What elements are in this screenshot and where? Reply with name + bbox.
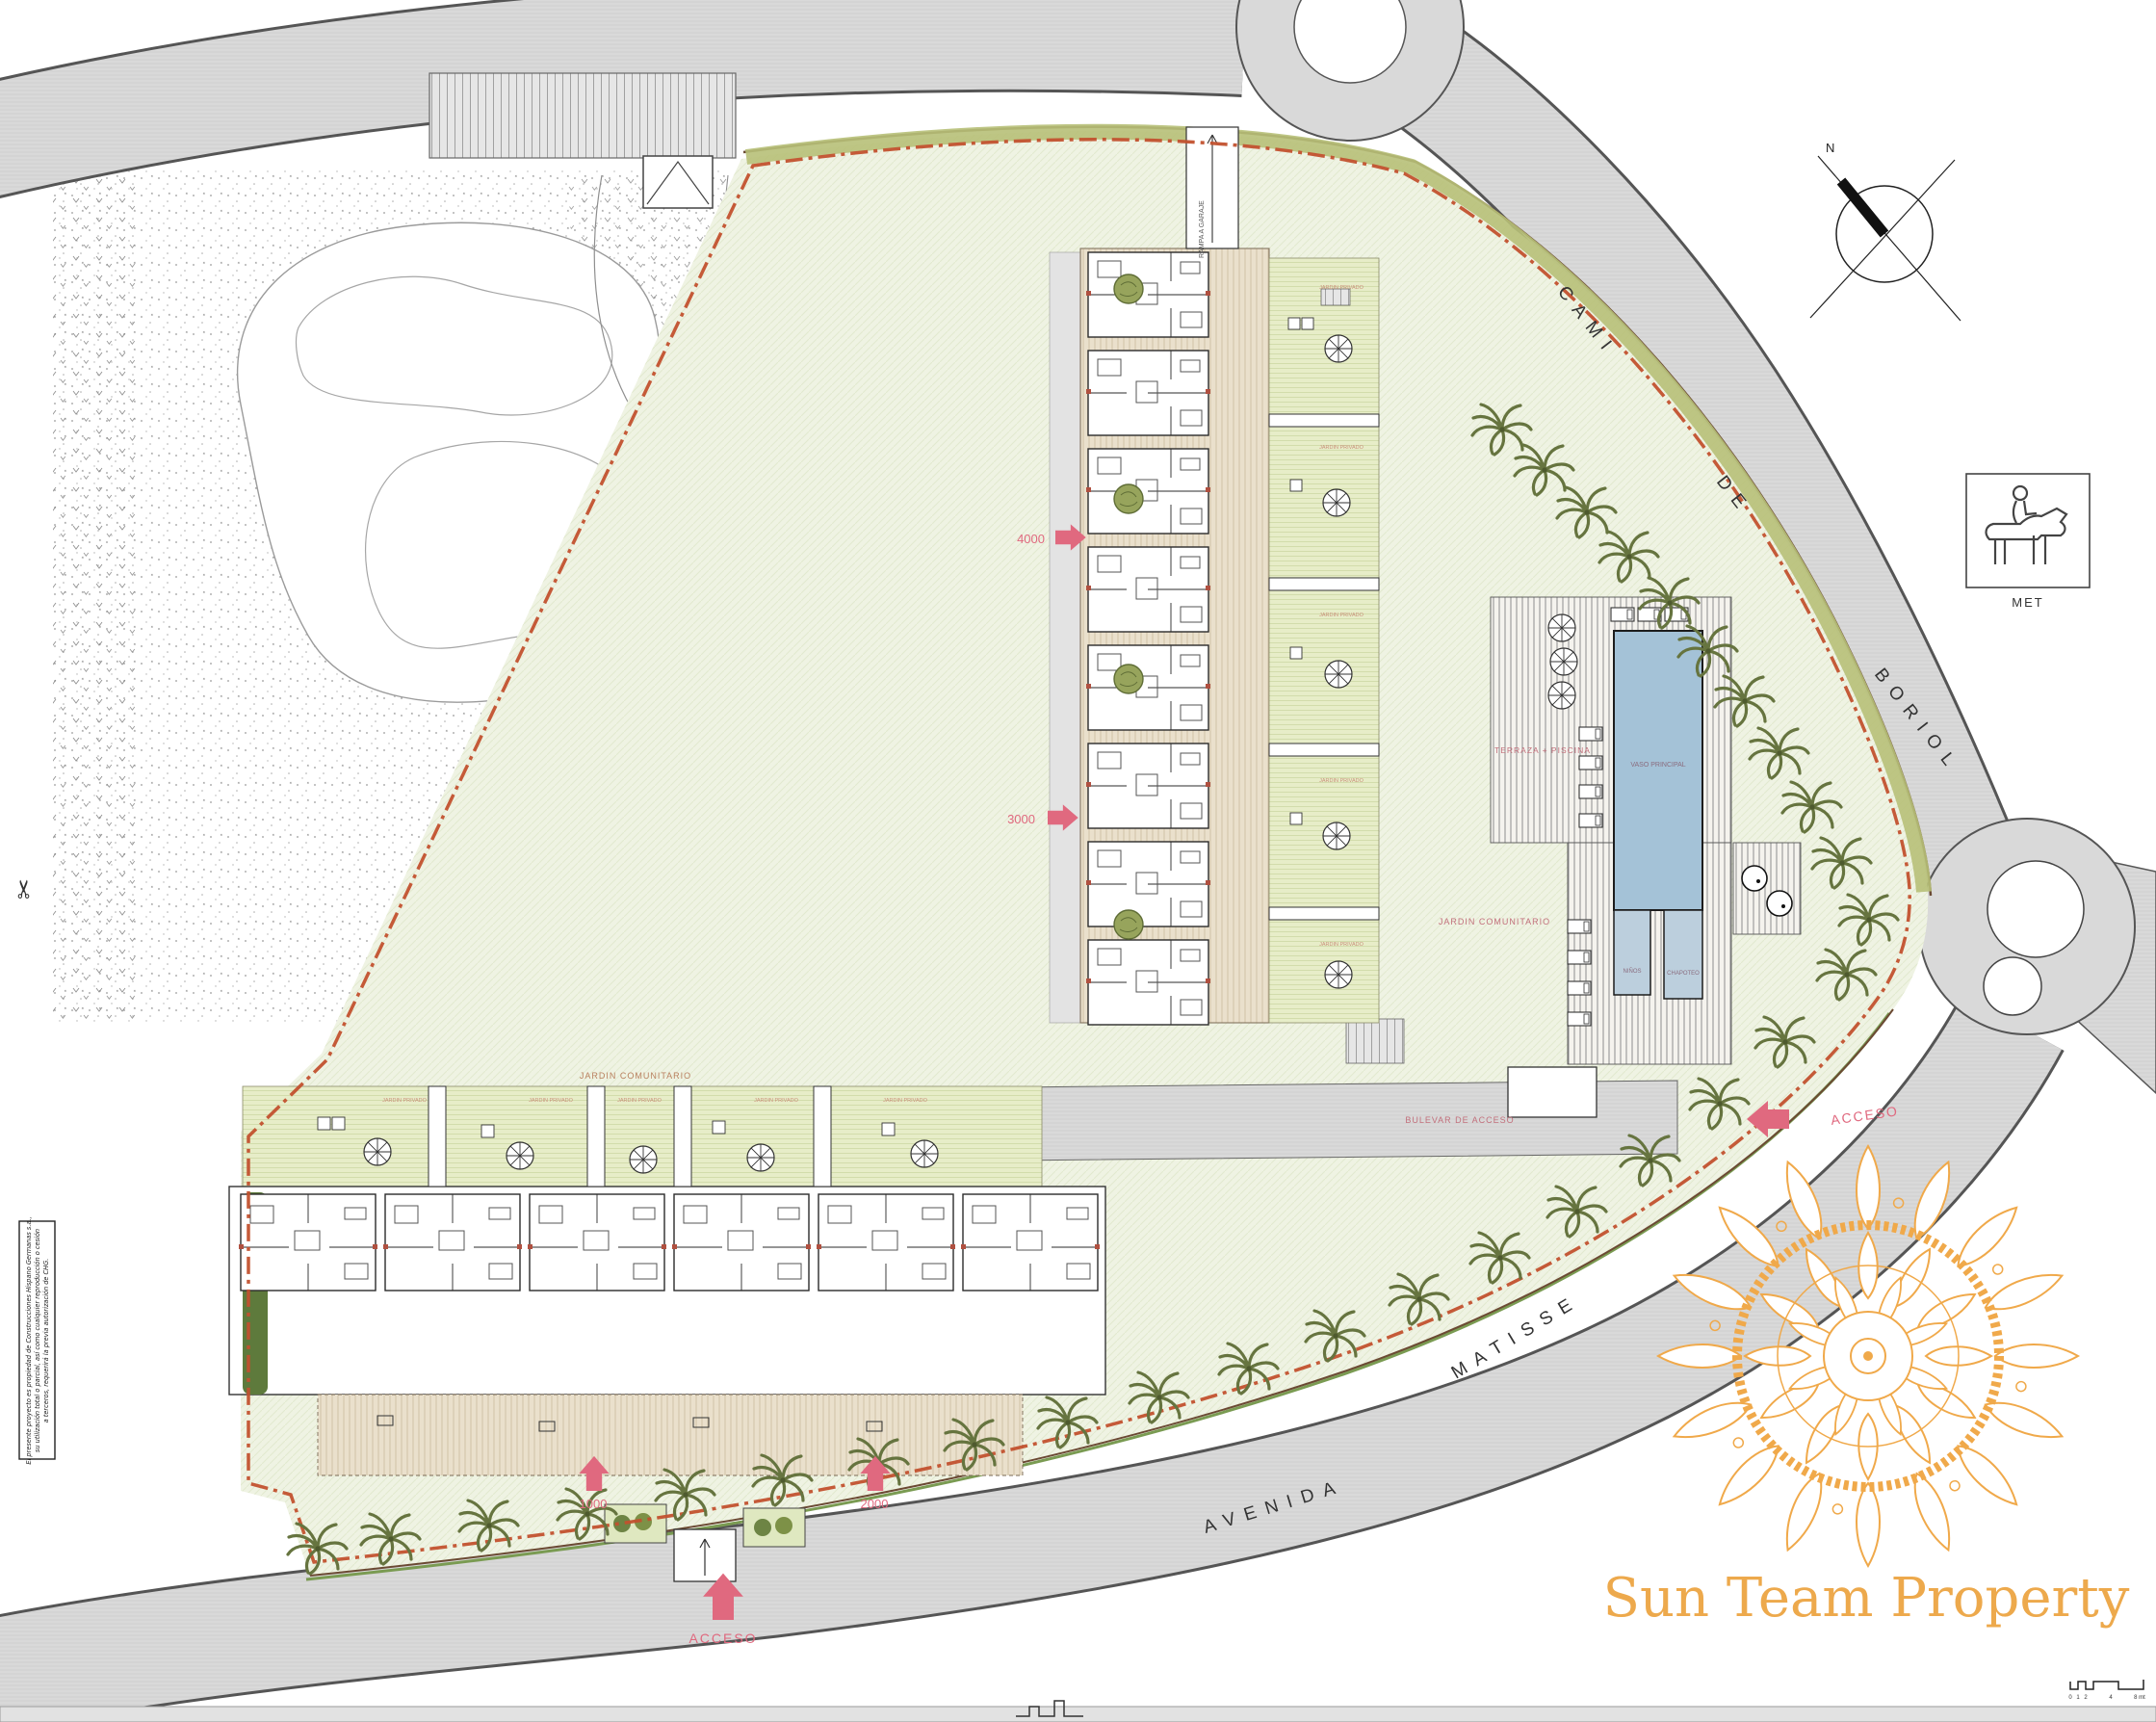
dim-label-3000: 3000 bbox=[1007, 812, 1035, 826]
garden-furniture bbox=[1290, 647, 1302, 659]
apartment-unit bbox=[672, 1194, 811, 1291]
garden-furniture bbox=[318, 1117, 330, 1130]
parasol-icon bbox=[911, 1140, 938, 1167]
lounger-icon bbox=[1579, 814, 1602, 827]
bottom-road-strip bbox=[0, 1707, 2156, 1722]
apartment-unit bbox=[1086, 940, 1210, 1025]
bush bbox=[775, 1517, 792, 1534]
scale-tick: 8 mt bbox=[2134, 1695, 2145, 1701]
site-plan-page: CAMPO DE GOLF DESIGN SEVE BALLESTEROS bbox=[0, 0, 2156, 1722]
table-dot bbox=[1781, 904, 1785, 908]
tree-icon bbox=[1114, 484, 1143, 513]
garden-furniture bbox=[1288, 318, 1300, 329]
entrance-pavilion bbox=[1508, 1067, 1597, 1117]
apartment-unit bbox=[383, 1194, 522, 1291]
apartment-unit bbox=[1086, 547, 1210, 632]
north-label: N bbox=[1826, 141, 1834, 155]
garden-divider bbox=[674, 1086, 691, 1187]
jardin-comunitario-label-1: JARDIN COMUNITARIO bbox=[1439, 917, 1550, 926]
parasol-icon bbox=[364, 1138, 391, 1165]
parasol-icon bbox=[1325, 961, 1352, 988]
garden-furniture bbox=[1290, 480, 1302, 491]
lounger-icon bbox=[1568, 1012, 1591, 1026]
table-dot bbox=[1756, 879, 1760, 883]
jardin-privado-label: JARDIN PRIVADO bbox=[1319, 942, 1364, 948]
jardin-privado-label: JARDIN PRIVADO bbox=[1319, 613, 1364, 618]
vaso-principal-label: VASO PRINCIPAL bbox=[1630, 762, 1685, 769]
garden-furniture bbox=[1302, 318, 1313, 329]
scale-tick: 0 bbox=[2068, 1695, 2072, 1701]
parasol-icon bbox=[1548, 614, 1575, 641]
parasol-icon bbox=[1325, 335, 1352, 362]
lounger-icon bbox=[1568, 920, 1591, 933]
parasol-icon bbox=[507, 1142, 533, 1169]
parking-lot bbox=[429, 73, 736, 158]
apartment-unit bbox=[1086, 842, 1210, 926]
garden-divider bbox=[429, 1086, 446, 1187]
scissors-icon: ✂ bbox=[10, 878, 39, 900]
apartment-unit bbox=[1086, 449, 1210, 534]
north-arrow: N bbox=[1810, 141, 1961, 321]
dim-label-2000: 2000 bbox=[861, 1497, 889, 1511]
kids-pool bbox=[1614, 910, 1650, 995]
chapoteo-pool-label: CHAPOTEO bbox=[1667, 971, 1700, 977]
round-table bbox=[1742, 866, 1767, 891]
tree-icon bbox=[1114, 274, 1143, 303]
ramp-label: RAMPA A GARAJE bbox=[1199, 200, 1206, 258]
jardin-privado-label: JARDIN PRIVADO bbox=[1319, 285, 1364, 291]
copyright-line-3: a terceros, requerirá la previa autoriza… bbox=[42, 1259, 50, 1423]
tree-icon bbox=[1114, 910, 1143, 939]
garden-divider bbox=[814, 1086, 831, 1187]
apartment-unit bbox=[239, 1194, 377, 1291]
jardin-privado-label: JARDIN PRIVADO bbox=[1319, 445, 1364, 451]
golf-rough-band-left bbox=[53, 173, 135, 1021]
splash-pool bbox=[1664, 910, 1702, 999]
garden-divider bbox=[1269, 907, 1379, 920]
dim-label-4000: 4000 bbox=[1017, 532, 1045, 546]
upper-residential-block: RAMPA A GARAJE JARDIN PRIVADO JARDIN PRI… bbox=[1050, 127, 1379, 1025]
garden-furniture bbox=[1290, 813, 1302, 824]
apartment-unit bbox=[1086, 351, 1210, 435]
mandala-icon bbox=[1658, 1146, 2078, 1566]
jardin-privado-label: JARDIN PRIVADO bbox=[883, 1098, 927, 1104]
jardin-privado-label: JARDIN PRIVADO bbox=[529, 1098, 573, 1104]
scale-bar: 0 1 2 4 8 mt bbox=[2068, 1680, 2145, 1701]
parasol-icon bbox=[630, 1146, 657, 1173]
jardin-comunitario-label-2: JARDIN COMUNITARIO bbox=[580, 1071, 691, 1081]
west-walkway bbox=[1050, 252, 1082, 1023]
stairs-hatch bbox=[1346, 1019, 1404, 1063]
apartment-unit bbox=[961, 1194, 1100, 1291]
scale-tick: 4 bbox=[2109, 1695, 2113, 1701]
parasol-icon bbox=[1323, 489, 1350, 516]
parasol-icon bbox=[1325, 661, 1352, 688]
copyright-line-1: El presente proyecto es propiedad de Con… bbox=[25, 1216, 33, 1464]
lounger-icon bbox=[1568, 951, 1591, 964]
copyright-box: El presente proyecto es propiedad de Con… bbox=[19, 1216, 55, 1464]
apartment-unit bbox=[817, 1194, 955, 1291]
met-sign: MET bbox=[1966, 474, 2090, 610]
garden-divider bbox=[587, 1086, 605, 1187]
apartment-unit bbox=[528, 1194, 666, 1291]
apartment-unit bbox=[1086, 744, 1210, 828]
garage-ramp: RAMPA A GARAJE bbox=[1186, 127, 1238, 258]
lower-residential-block: JARDIN PRIVADO JARDIN PRIVADO JARDIN PRI… bbox=[229, 1071, 1105, 1475]
logo-text: Sun Team Property bbox=[1603, 1567, 2130, 1630]
scale-tick: 1 bbox=[2076, 1695, 2080, 1701]
bulevar-label: BULEVAR DE ACCESO bbox=[1405, 1115, 1514, 1125]
main-pool bbox=[1614, 631, 1702, 910]
garden-furniture bbox=[713, 1121, 725, 1134]
tree-icon bbox=[1114, 665, 1143, 693]
jardin-privado-label: JARDIN PRIVADO bbox=[382, 1098, 427, 1104]
lower-terraces bbox=[318, 1395, 1023, 1475]
jardin-privado-label: JARDIN PRIVADO bbox=[617, 1098, 662, 1104]
apartment-unit bbox=[1086, 645, 1210, 730]
jardin-privado-label: JARDIN PRIVADO bbox=[1319, 778, 1364, 784]
acceso-label-bottom: ACCESO bbox=[688, 1631, 757, 1646]
pergola-deck bbox=[1733, 843, 1801, 934]
met-label: MET bbox=[2012, 595, 2043, 610]
apartment-unit bbox=[1086, 252, 1210, 337]
garden-furniture bbox=[882, 1123, 895, 1135]
planter-right bbox=[743, 1508, 805, 1547]
parasol-icon bbox=[1323, 822, 1350, 849]
parasol-icon bbox=[1550, 648, 1577, 675]
scale-tick: 2 bbox=[2084, 1695, 2088, 1701]
stairs-upper bbox=[1321, 289, 1350, 305]
flag-box bbox=[643, 156, 713, 208]
round-table bbox=[1767, 891, 1792, 916]
garden-furniture bbox=[332, 1117, 345, 1130]
lounger-icon bbox=[1579, 785, 1602, 798]
lounger-icon bbox=[1579, 727, 1602, 741]
site-plan-drawing: CAMPO DE GOLF DESIGN SEVE BALLESTEROS bbox=[0, 0, 2156, 1722]
garden-divider bbox=[1269, 578, 1379, 590]
jardin-privado-label: JARDIN PRIVADO bbox=[754, 1098, 798, 1104]
garden-furniture bbox=[481, 1125, 494, 1137]
garden-divider bbox=[1269, 414, 1379, 427]
lounger-icon bbox=[1568, 981, 1591, 995]
garden-divider bbox=[1269, 744, 1379, 756]
copyright-line-2: su utilización total o parcial, así como… bbox=[34, 1229, 41, 1452]
ninos-pool-label: NIÑOS bbox=[1623, 968, 1641, 975]
dim-label-1000: 1000 bbox=[580, 1497, 608, 1511]
lounger-icon bbox=[1579, 756, 1602, 770]
lounger-icon bbox=[1611, 608, 1634, 621]
terraza-piscina-label: TERRAZA + PISCINA bbox=[1494, 745, 1591, 755]
roundabout-east bbox=[1919, 819, 2135, 1034]
parasol-icon bbox=[1548, 682, 1575, 709]
bush bbox=[754, 1519, 771, 1536]
parasol-icon bbox=[747, 1144, 774, 1171]
